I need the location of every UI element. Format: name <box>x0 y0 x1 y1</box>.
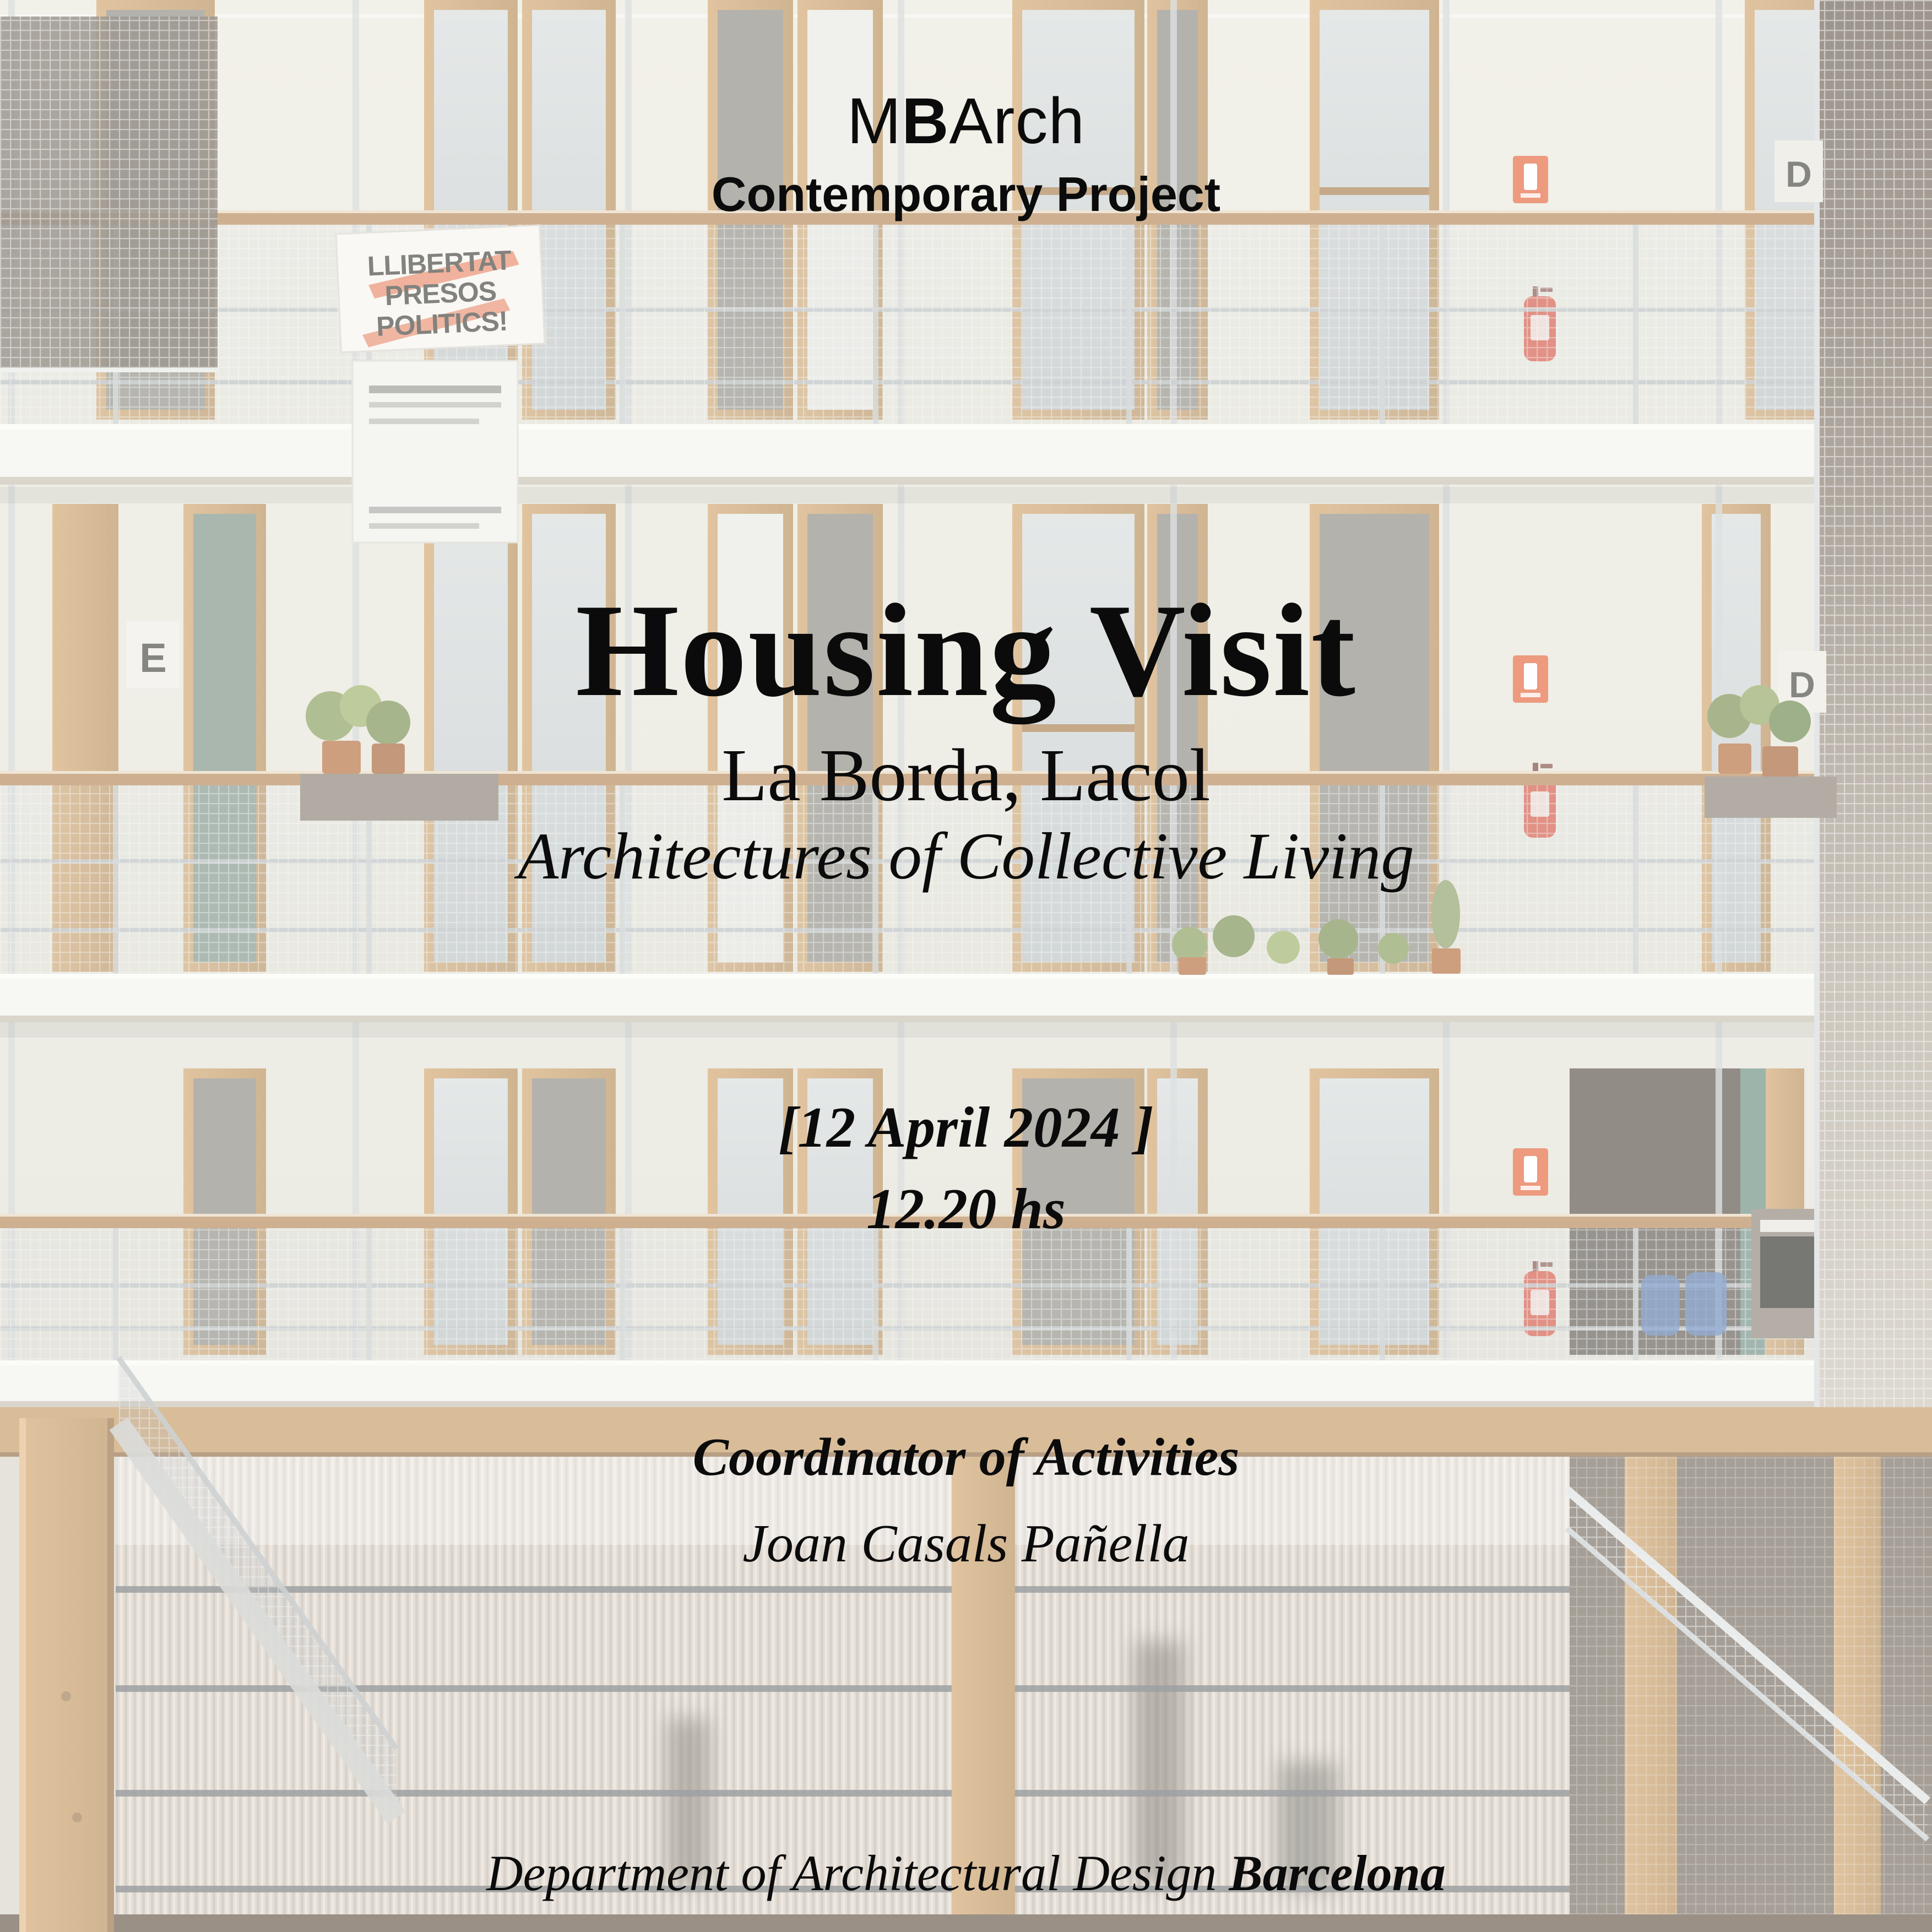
event-title: Housing Visit <box>0 574 1932 727</box>
program-part-arch: Arch <box>949 85 1085 158</box>
program-subtitle: Contemporary Project <box>0 166 1932 222</box>
white-wash-overlay <box>0 0 1932 1932</box>
program-part-b: B <box>902 85 949 158</box>
event-time: 12.20 hs <box>0 1175 1932 1242</box>
footer-department: Department of Architectural DesignBarcel… <box>0 1844 1932 1902</box>
event-tagline: Architectures of Collective Living <box>0 818 1932 895</box>
program-title: MBArch <box>0 84 1932 159</box>
event-date: [12 April 2024 ] <box>0 1094 1932 1160</box>
coordinator-name: Joan Casals Pañella <box>0 1513 1932 1575</box>
program-part-m: M <box>847 85 902 158</box>
event-poster: LLIBERTAT PRESOS POLITICS! E D D <box>0 0 1932 1932</box>
footer-city: Barcelona <box>1229 1845 1446 1901</box>
coordinator-label: Coordinator of Activities <box>0 1426 1932 1488</box>
event-subtitle: La Borda, Lacol <box>0 732 1932 818</box>
courtyard-photo-background: LLIBERTAT PRESOS POLITICS! E D D <box>0 0 1932 1932</box>
footer-department-text: Department of Architectural Design <box>486 1845 1217 1901</box>
